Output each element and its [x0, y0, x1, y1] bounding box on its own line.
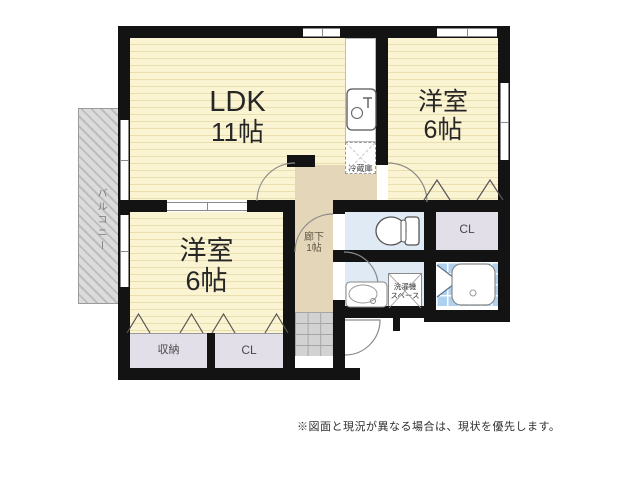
bedroom-name: 洋室 [130, 236, 283, 266]
floorplan-canvas: バルコニー 冷蔵庫 LDK 11帖 洋室 6帖 [0, 0, 640, 480]
balcony-label: バルコニー [93, 188, 108, 298]
fridge-box: 冷蔵庫 [345, 142, 376, 174]
bedroom-size: 6帖 [130, 266, 283, 296]
wall [118, 368, 360, 380]
closet-top-right-label: CL [436, 223, 498, 236]
wall [424, 212, 436, 310]
washer-space-label: 洗濯機 スペース [388, 282, 422, 301]
window [120, 215, 129, 287]
ldk-label: LDK 11帖 [130, 86, 345, 148]
disclaimer-text: ※図面と現況が異なる場合は、現状を優先します。 [297, 418, 560, 434]
entrance-tiles [295, 312, 333, 356]
wall [287, 155, 315, 167]
ldk-size: 11帖 [130, 118, 345, 147]
closet-bottom-label: CL [215, 344, 283, 357]
window [437, 28, 497, 37]
washer-label-line1: 洗濯機 [388, 282, 422, 291]
ldk-name: LDK [130, 86, 345, 118]
wall [333, 200, 345, 214]
bedroom-bottom-left-label: 洋室 6帖 [130, 236, 283, 296]
wall [393, 318, 400, 331]
wall [207, 333, 215, 368]
wall [247, 200, 295, 212]
toilet-room [345, 212, 424, 250]
hallway-lower [295, 200, 333, 312]
window [120, 120, 129, 200]
wall [333, 200, 510, 212]
storage-label: 収納 [130, 344, 207, 356]
hallway-name: 廊下 [295, 232, 333, 243]
entrance-door [345, 320, 380, 355]
wall [118, 200, 167, 212]
bedroom-top-right-label: 洋室 6帖 [388, 88, 498, 144]
bedroom-name: 洋室 [388, 88, 498, 116]
window [500, 83, 509, 160]
bedroom-size: 6帖 [388, 116, 498, 144]
wall [333, 306, 436, 318]
window [303, 28, 340, 37]
kitchen-counter [345, 38, 376, 142]
fridge-label: 冷蔵庫 [349, 164, 373, 173]
washer-label-line2: スペース [388, 291, 422, 300]
wall [333, 250, 510, 262]
wall [376, 26, 388, 165]
wall [424, 310, 510, 322]
hallway-size: 1帖 [295, 243, 333, 254]
window [167, 202, 247, 211]
bathroom [436, 262, 498, 306]
wall [498, 26, 510, 322]
hallway-label: 廊下 1帖 [295, 232, 333, 254]
wall [283, 212, 295, 380]
